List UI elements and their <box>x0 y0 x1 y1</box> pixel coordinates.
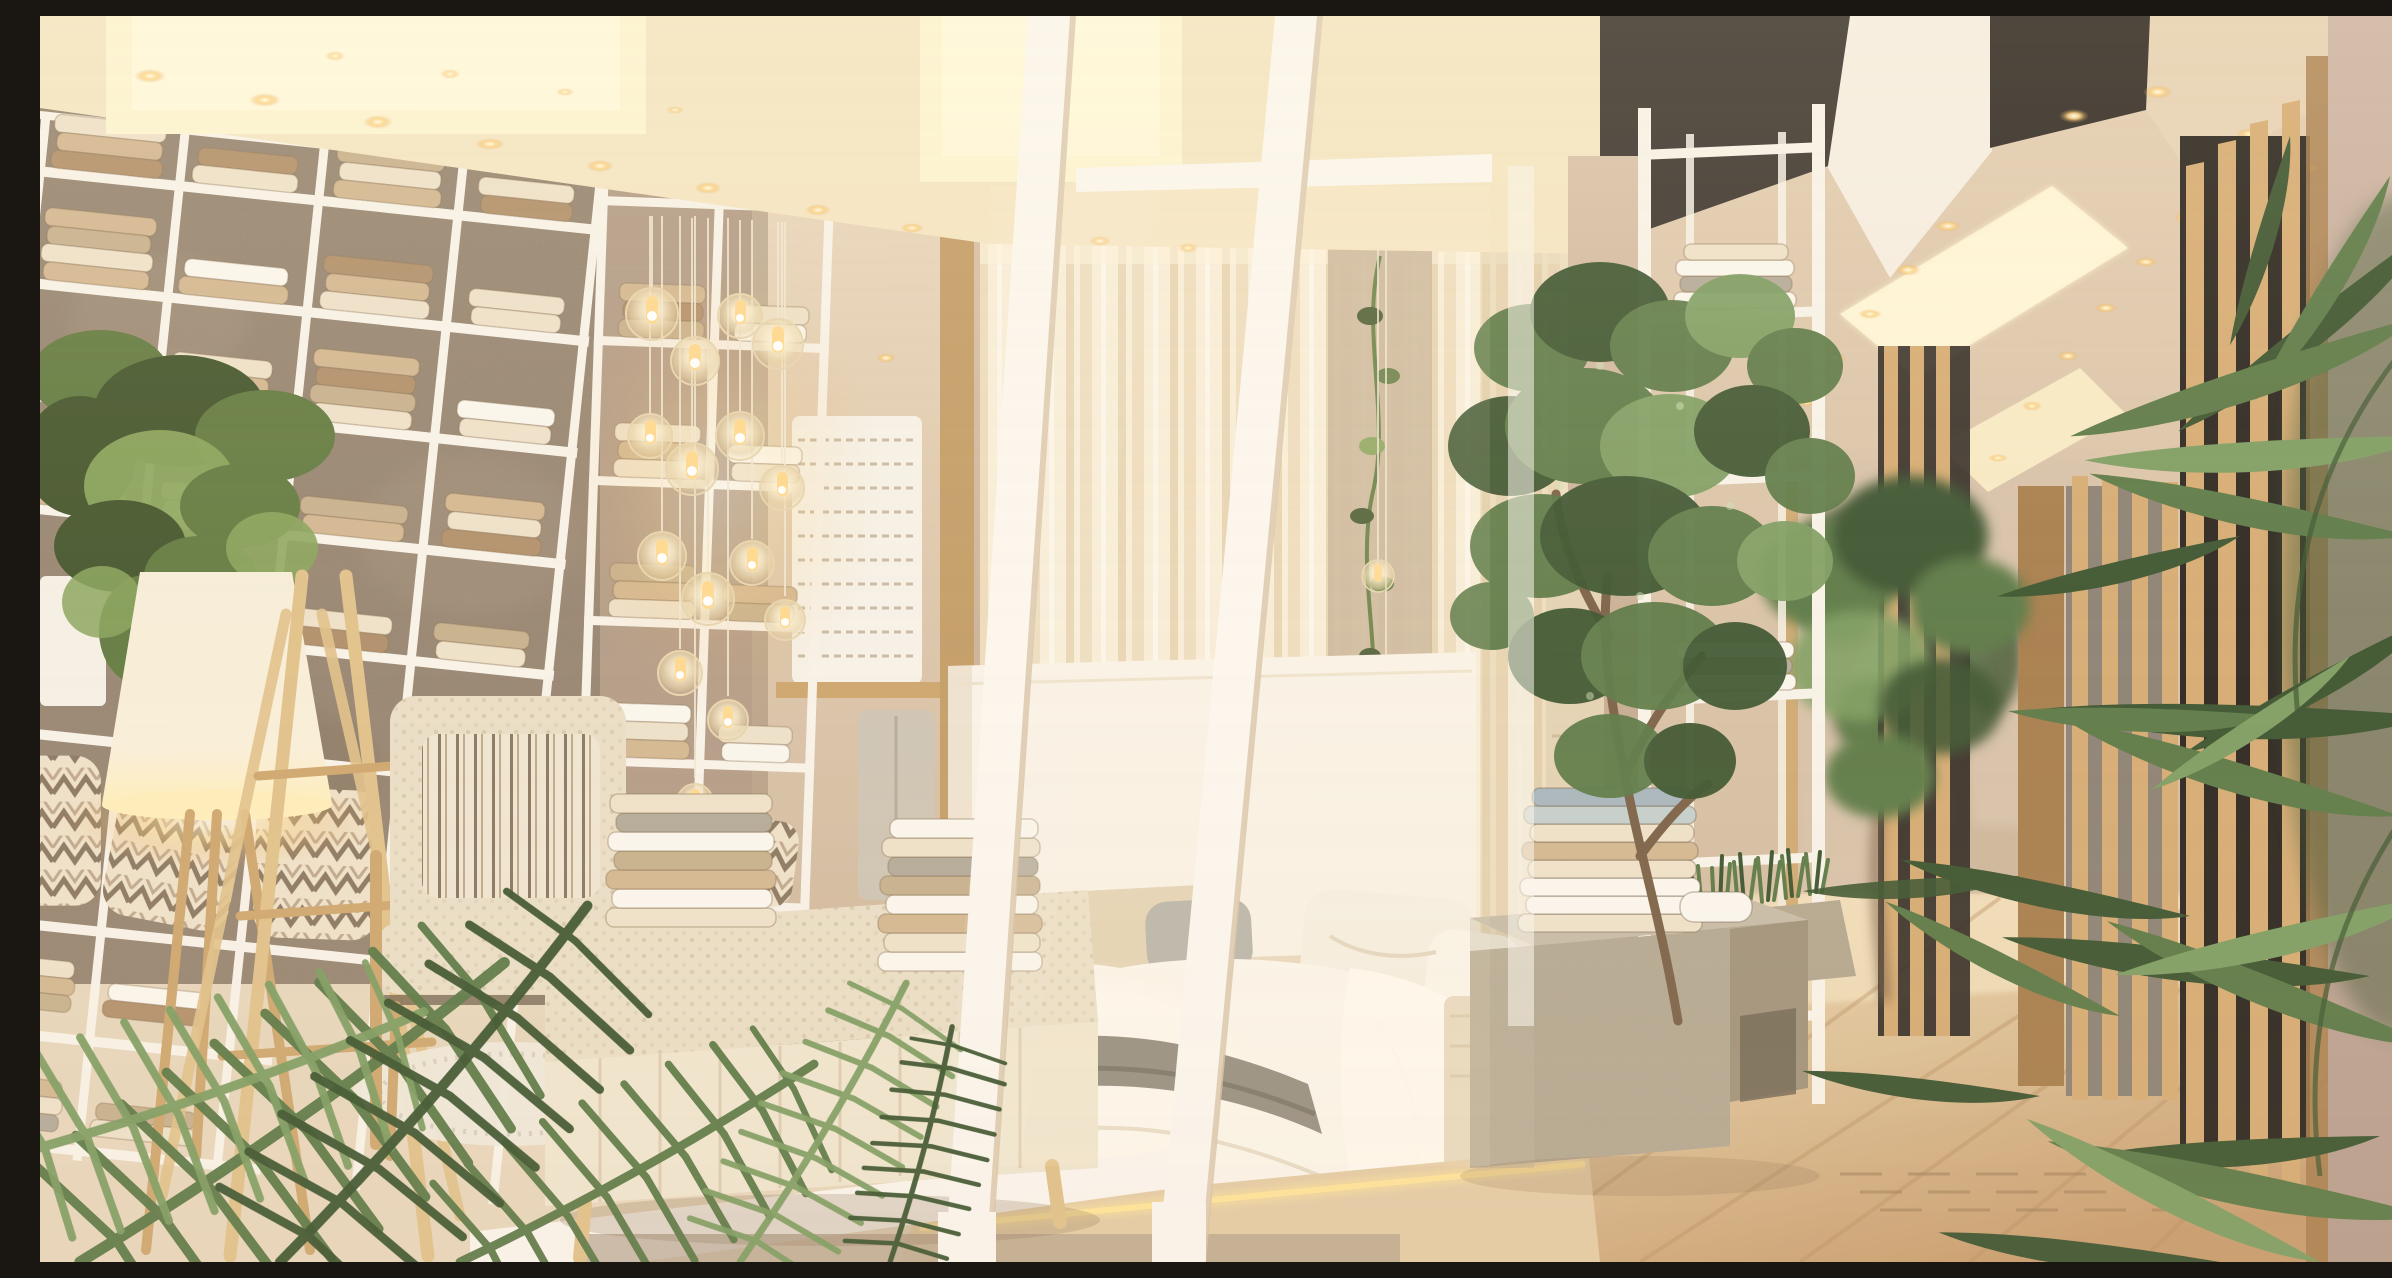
showroom-photo: Home textile showroom — bedroom display <box>40 16 2392 1262</box>
interior-render <box>40 16 2392 1262</box>
warm-light-overlay <box>40 16 2392 1262</box>
